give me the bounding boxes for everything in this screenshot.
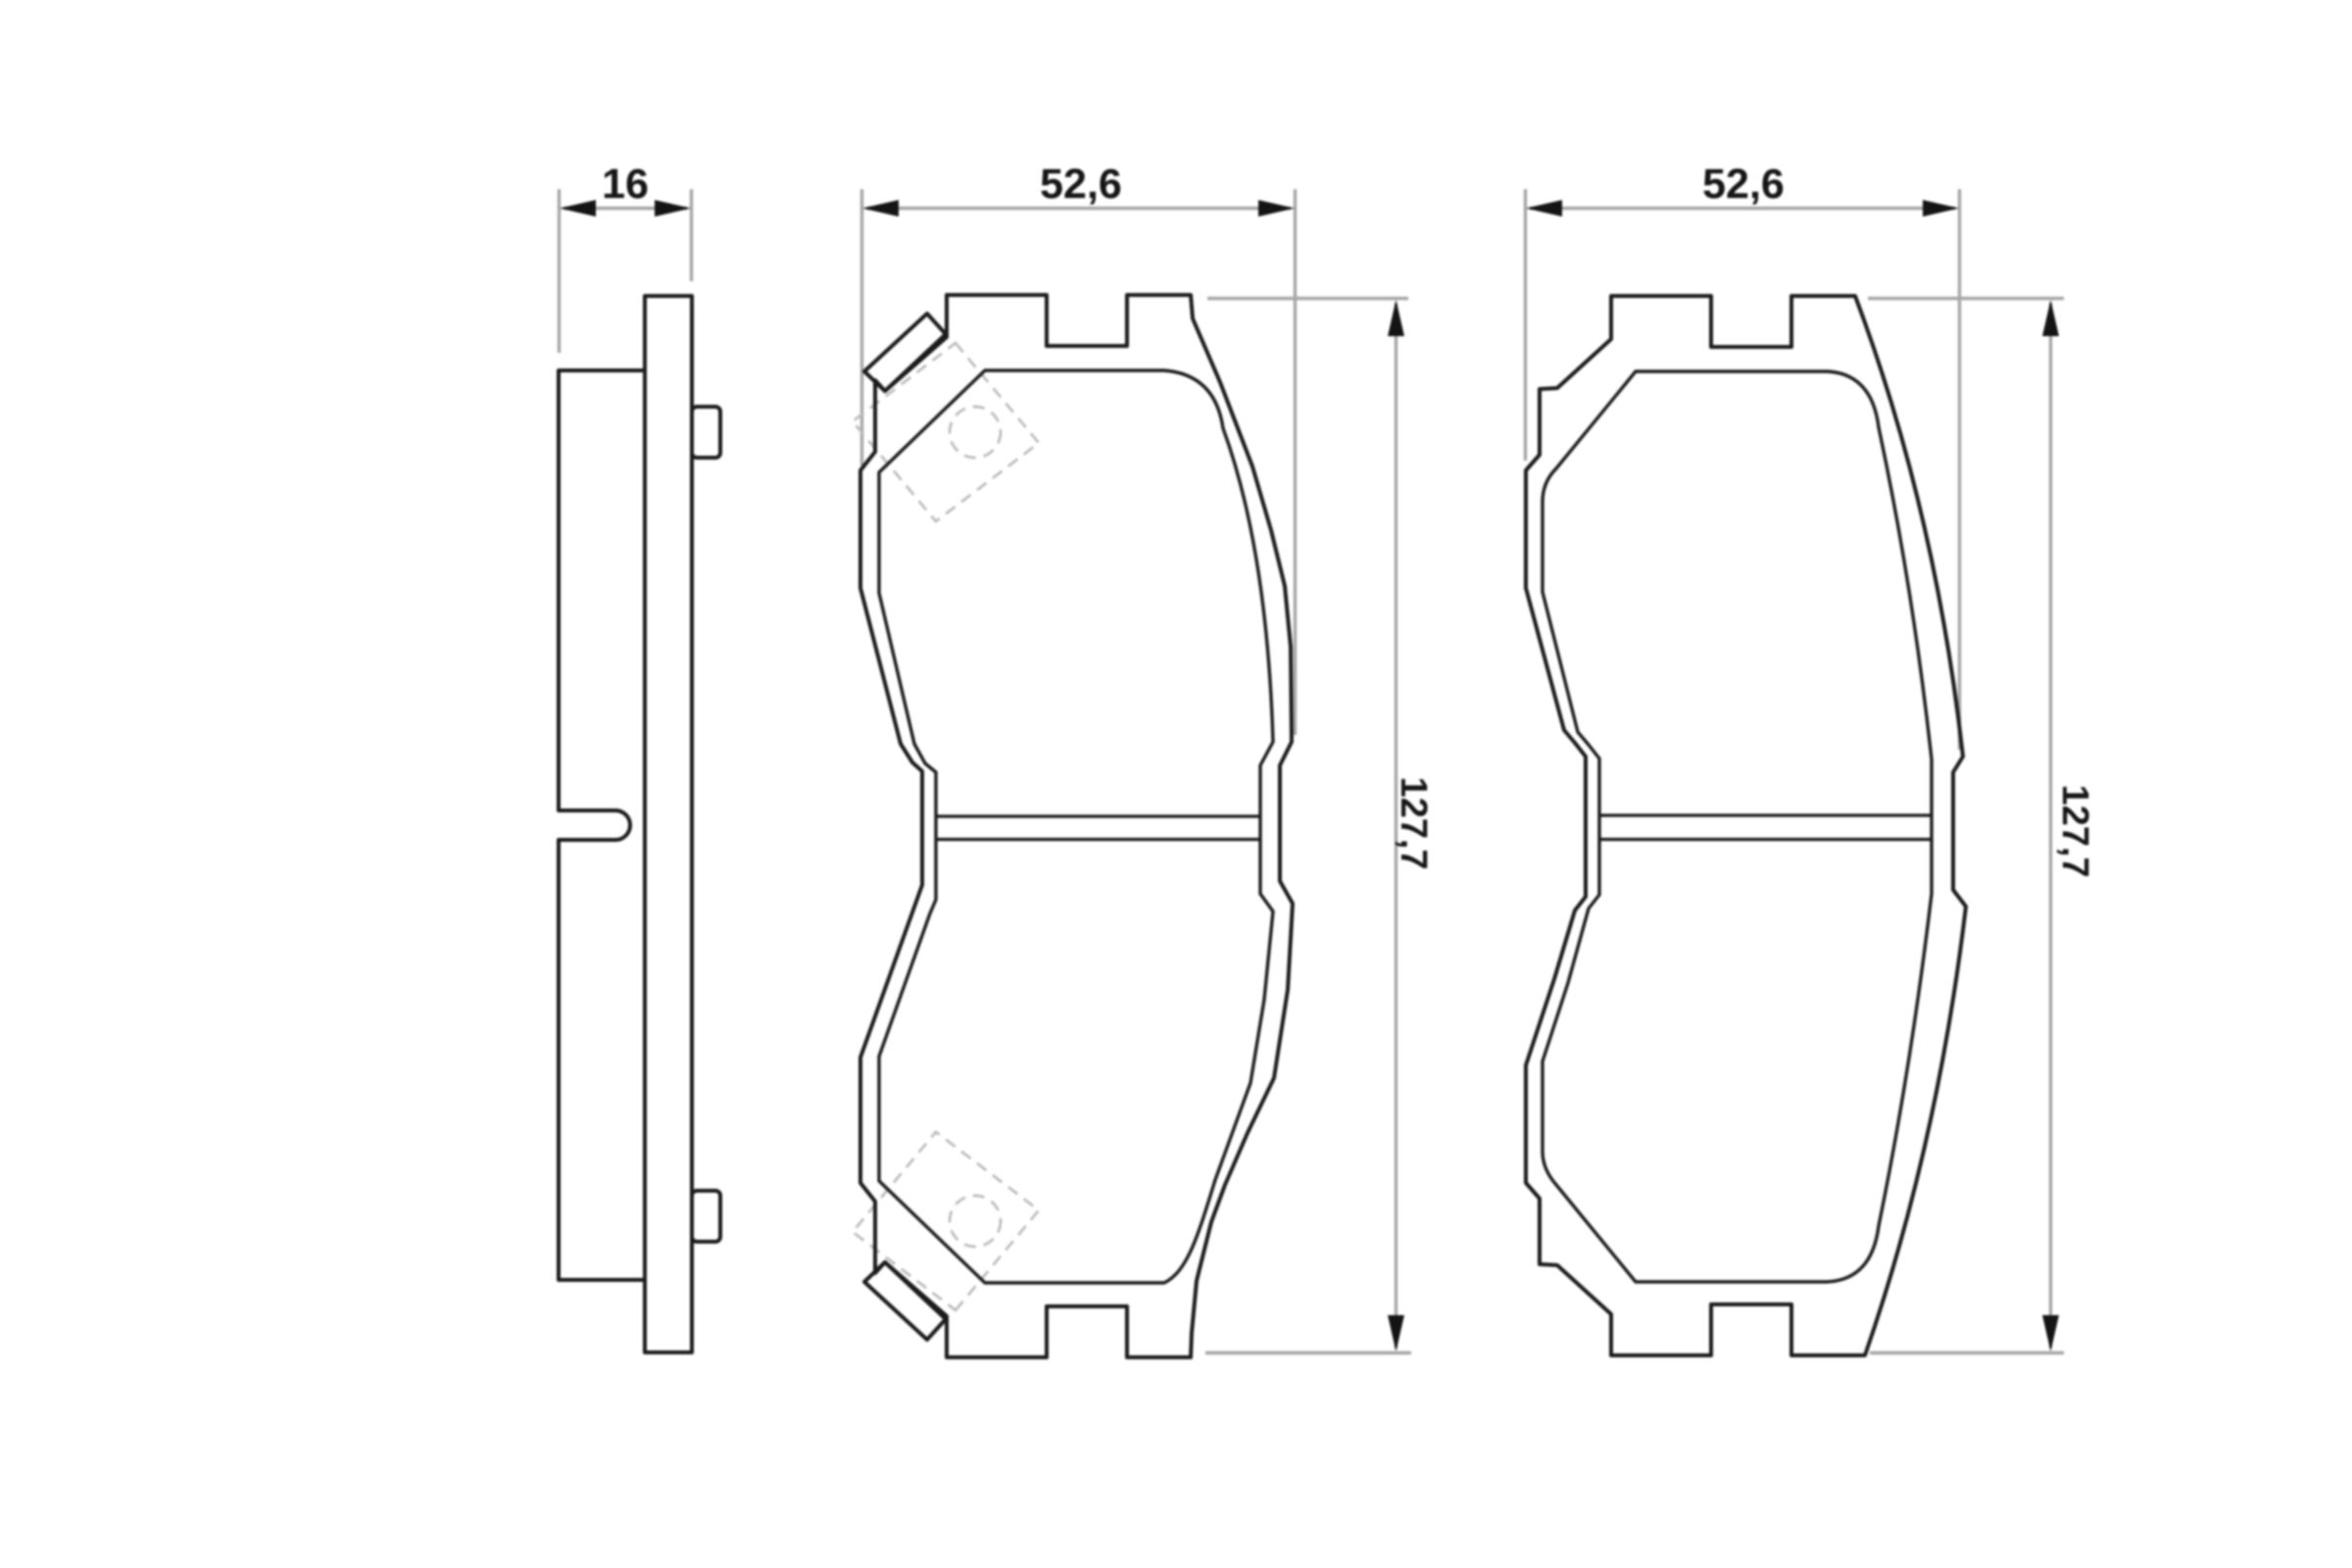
svg-text:52,6: 52,6 <box>1702 161 1785 208</box>
svg-text:52,6: 52,6 <box>1040 161 1122 208</box>
svg-text:127,7: 127,7 <box>2054 784 2095 877</box>
svg-text:127,7: 127,7 <box>1393 776 1434 869</box>
svg-text:16: 16 <box>602 161 649 208</box>
